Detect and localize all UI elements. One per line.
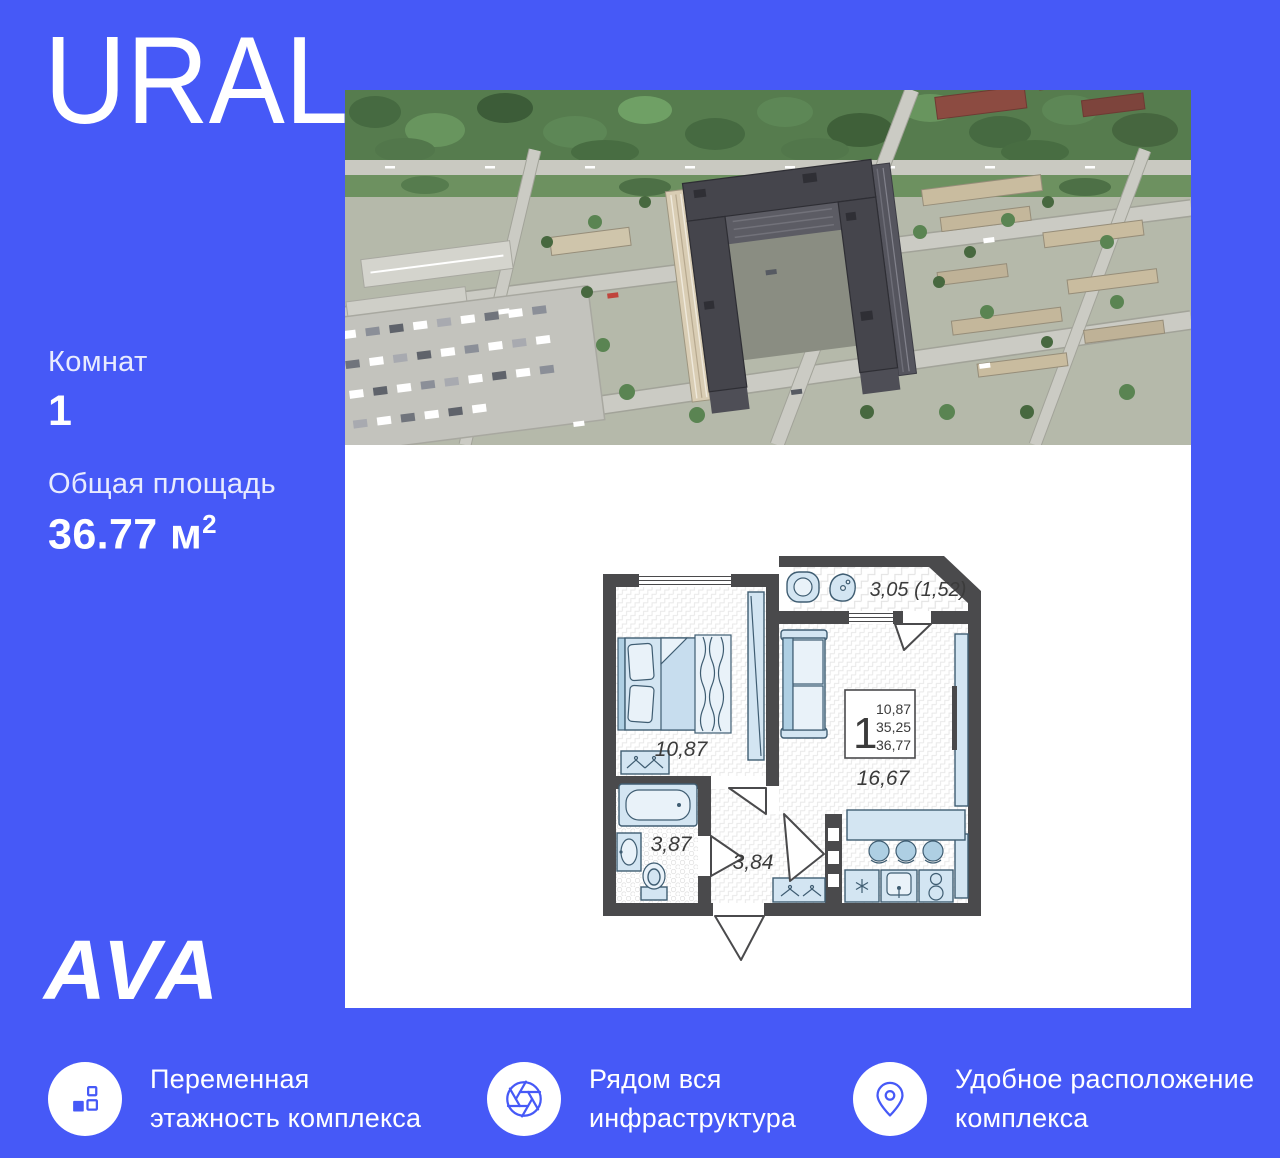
aperture-icon xyxy=(503,1078,545,1120)
feature-infrastructure: Рядом вся инфраструктура xyxy=(487,1060,796,1138)
stove xyxy=(919,870,953,902)
kitchen-window-sill xyxy=(955,834,968,898)
balcony-window xyxy=(849,611,893,624)
entrance-door xyxy=(715,916,764,960)
floor-plan: 1 10,87 35,25 36,77 3,05 (1,52) 10,87 16… xyxy=(581,536,985,966)
sofa xyxy=(781,630,827,738)
feature-circle xyxy=(853,1062,927,1136)
info-area-no-balcony: 35,25 xyxy=(876,719,911,735)
listing-poster: { "colors": { "background": "#4659f7", "… xyxy=(0,0,1280,1158)
feature-text: Удобное расположение комплекса xyxy=(955,1060,1254,1138)
info-total-area: 36,77 xyxy=(876,737,911,753)
tv-unit xyxy=(952,634,968,806)
feature-text: Рядом вся инфраструктура xyxy=(589,1060,796,1138)
rooms-value: 1 xyxy=(48,387,148,436)
total-area-value: 36.77 м2 xyxy=(48,509,276,559)
feature-line: комплекса xyxy=(955,1099,1254,1138)
washbasin xyxy=(617,833,641,871)
plan-info-box: 1 10,87 35,25 36,77 xyxy=(845,690,915,758)
living-area-label: 16,67 xyxy=(857,767,911,790)
feature-line: Переменная xyxy=(150,1060,421,1099)
info-living-area: 10,87 xyxy=(876,701,911,717)
kitchen-sink xyxy=(881,870,917,902)
rooms-label: Комнат xyxy=(48,346,148,379)
feature-line: Удобное расположение xyxy=(955,1060,1254,1099)
bathtub xyxy=(619,784,697,826)
feature-circle xyxy=(487,1062,561,1136)
bedroom-wardrobe xyxy=(748,592,764,760)
blocks-icon xyxy=(65,1079,105,1119)
page-title: URAL xyxy=(44,16,348,146)
feature-line: этажность комплекса xyxy=(150,1099,421,1138)
fridge xyxy=(845,870,879,902)
feature-line: Рядом вся xyxy=(589,1060,796,1099)
rooms-stat: Комнат 1 xyxy=(48,346,148,436)
bedroom-window xyxy=(639,574,731,587)
bathroom-area-label: 3,87 xyxy=(651,833,693,856)
feature-location: Удобное расположение комплекса xyxy=(853,1060,1254,1138)
bed xyxy=(618,635,731,733)
toilet xyxy=(641,863,667,900)
feature-text: Переменная этажность комплекса xyxy=(150,1060,421,1138)
aerial-photo xyxy=(345,90,1191,445)
balcony-area-label: 3,05 (1,52) xyxy=(870,579,967,601)
location-pin-icon xyxy=(869,1078,911,1120)
bedroom-area-label: 10,87 xyxy=(655,738,709,761)
media-panel: 1 10,87 35,25 36,77 3,05 (1,52) 10,87 16… xyxy=(345,90,1191,1008)
info-rooms-count: 1 xyxy=(853,709,877,758)
hall-area-label: 3,84 xyxy=(733,851,774,874)
feature-line: инфраструктура xyxy=(589,1099,796,1138)
total-area-label: Общая площадь xyxy=(48,468,276,501)
feature-circle xyxy=(48,1062,122,1136)
feature-variable-floors: Переменная этажность комплекса xyxy=(48,1060,421,1138)
total-area-stat: Общая площадь 36.77 м2 xyxy=(48,468,276,559)
square-meter-sup: 2 xyxy=(202,509,217,539)
hall-hanger-unit xyxy=(773,878,825,902)
developer-logo: AVA xyxy=(44,922,221,1019)
